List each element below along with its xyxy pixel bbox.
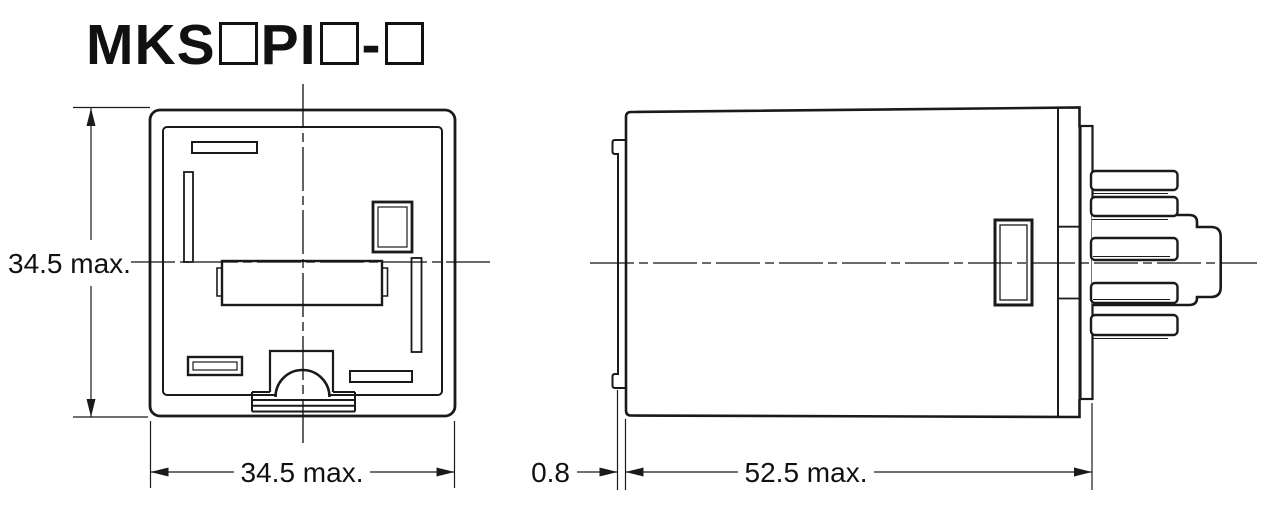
model-mid: PI [261,14,317,77]
front-left-slot [184,172,193,262]
front-bottom-right-slot [350,371,412,382]
front-bottom-left-slot [188,357,242,375]
side-view [613,108,1221,418]
pin-2 [1091,197,1178,216]
pin-1 [1091,171,1178,190]
flange-thickness-label: 0.8 [531,457,570,488]
side-front-flange [613,140,627,388]
front-width-label: 34.5 max. [241,457,364,488]
front-height-label: 34.5 max. [8,248,131,279]
dim-flange: 0.8 [531,390,625,490]
side-pins [1091,171,1178,335]
dimensions: 34.5 max. 34.5 max. 0.8 52.5 [8,108,1092,491]
dim-arrowhead-flange [600,468,618,477]
pin-5 [1091,315,1178,335]
dimension-drawing-canvas: 34.5 max. 34.5 max. 0.8 52.5 [0,0,1262,506]
front-center-block [222,261,382,305]
variant-box-3 [385,22,424,65]
model-dash: - [362,14,382,77]
model-number-title: MKSPI- [86,14,427,77]
variant-box-2 [320,22,359,65]
front-top-slot [192,142,257,153]
model-prefix: MKS [86,14,216,77]
front-right-window [373,202,412,252]
front-right-slot [412,258,422,352]
dim-front-height: 34.5 max. [8,108,150,418]
body-depth-label: 52.5 max. [745,457,868,488]
variant-box-1 [219,22,258,65]
